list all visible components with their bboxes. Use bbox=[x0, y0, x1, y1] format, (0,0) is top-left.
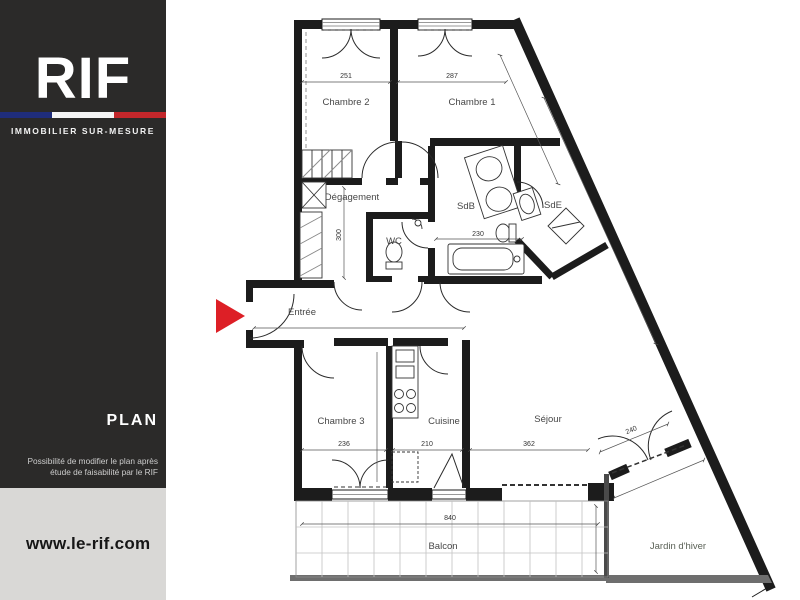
window-chambre3 bbox=[332, 490, 388, 499]
corner-sink-wc bbox=[412, 219, 422, 229]
room-label-degagement: Dégagement bbox=[325, 192, 380, 203]
dim-chambre1: 287 bbox=[446, 73, 458, 80]
flag-white-segment bbox=[52, 112, 114, 118]
room-label-chambre3: Chambre 3 bbox=[318, 416, 365, 427]
sidebar-footer: www.le-rif.com bbox=[0, 488, 166, 600]
dim-balcon: 840 bbox=[444, 515, 456, 522]
plan-section-label: PLAN bbox=[106, 412, 158, 430]
french-flag-stripe bbox=[0, 112, 166, 118]
room-label-jardin: Jardin d'hiver bbox=[650, 541, 706, 552]
plan-note-line2: étude de faisabilité par le RIF bbox=[50, 467, 158, 477]
dim-chambre3: 236 bbox=[338, 441, 350, 448]
flag-blue-segment bbox=[0, 112, 52, 118]
window-chambre2 bbox=[322, 19, 380, 30]
balcony-grid bbox=[296, 501, 608, 577]
kitchen-counter bbox=[392, 346, 418, 482]
room-label-balcon: Balcon bbox=[428, 541, 457, 552]
flag-red-segment bbox=[114, 112, 166, 118]
dim-bathtub: 230 bbox=[472, 231, 484, 238]
logo-tagline: IMMOBILIER SUR-MESURE bbox=[0, 126, 166, 136]
window-cuisine bbox=[432, 490, 466, 499]
entrance-arrow-icon bbox=[216, 299, 245, 333]
dim-degagement: 300 bbox=[336, 229, 343, 241]
room-label-chambre2: Chambre 2 bbox=[323, 97, 370, 108]
dim-chambre2: 251 bbox=[340, 73, 352, 80]
dim-cuisine: 210 bbox=[421, 441, 433, 448]
sidebar: RIF IMMOBILIER SUR-MESURE PLAN Possibili… bbox=[0, 0, 166, 600]
room-label-wc: WC bbox=[386, 236, 402, 247]
shower-sde bbox=[548, 208, 584, 244]
plan-note-line1: Possibilité de modifier le plan après bbox=[27, 456, 158, 466]
plan-note: Possibilité de modifier le plan après ét… bbox=[13, 456, 158, 478]
bathtub bbox=[448, 244, 524, 274]
room-label-sejour: Séjour bbox=[534, 414, 561, 425]
dim-sejour: 362 bbox=[523, 441, 535, 448]
room-label-sdb: SdB bbox=[457, 201, 475, 212]
rif-logo: RIF bbox=[0, 50, 166, 108]
room-label-sde: SdE bbox=[544, 200, 562, 211]
room-label-entree: Entrée bbox=[288, 307, 316, 318]
sidebar-dark-panel: RIF IMMOBILIER SUR-MESURE PLAN Possibili… bbox=[0, 0, 166, 488]
window-chambre1 bbox=[418, 19, 472, 30]
room-label-chambre1: Chambre 1 bbox=[449, 97, 496, 108]
room-label-cuisine: Cuisine bbox=[428, 416, 460, 427]
sink-sde bbox=[513, 188, 541, 221]
website-text: www.le-rif.com bbox=[0, 534, 150, 554]
dim-jardin-door: 240 bbox=[625, 425, 639, 436]
